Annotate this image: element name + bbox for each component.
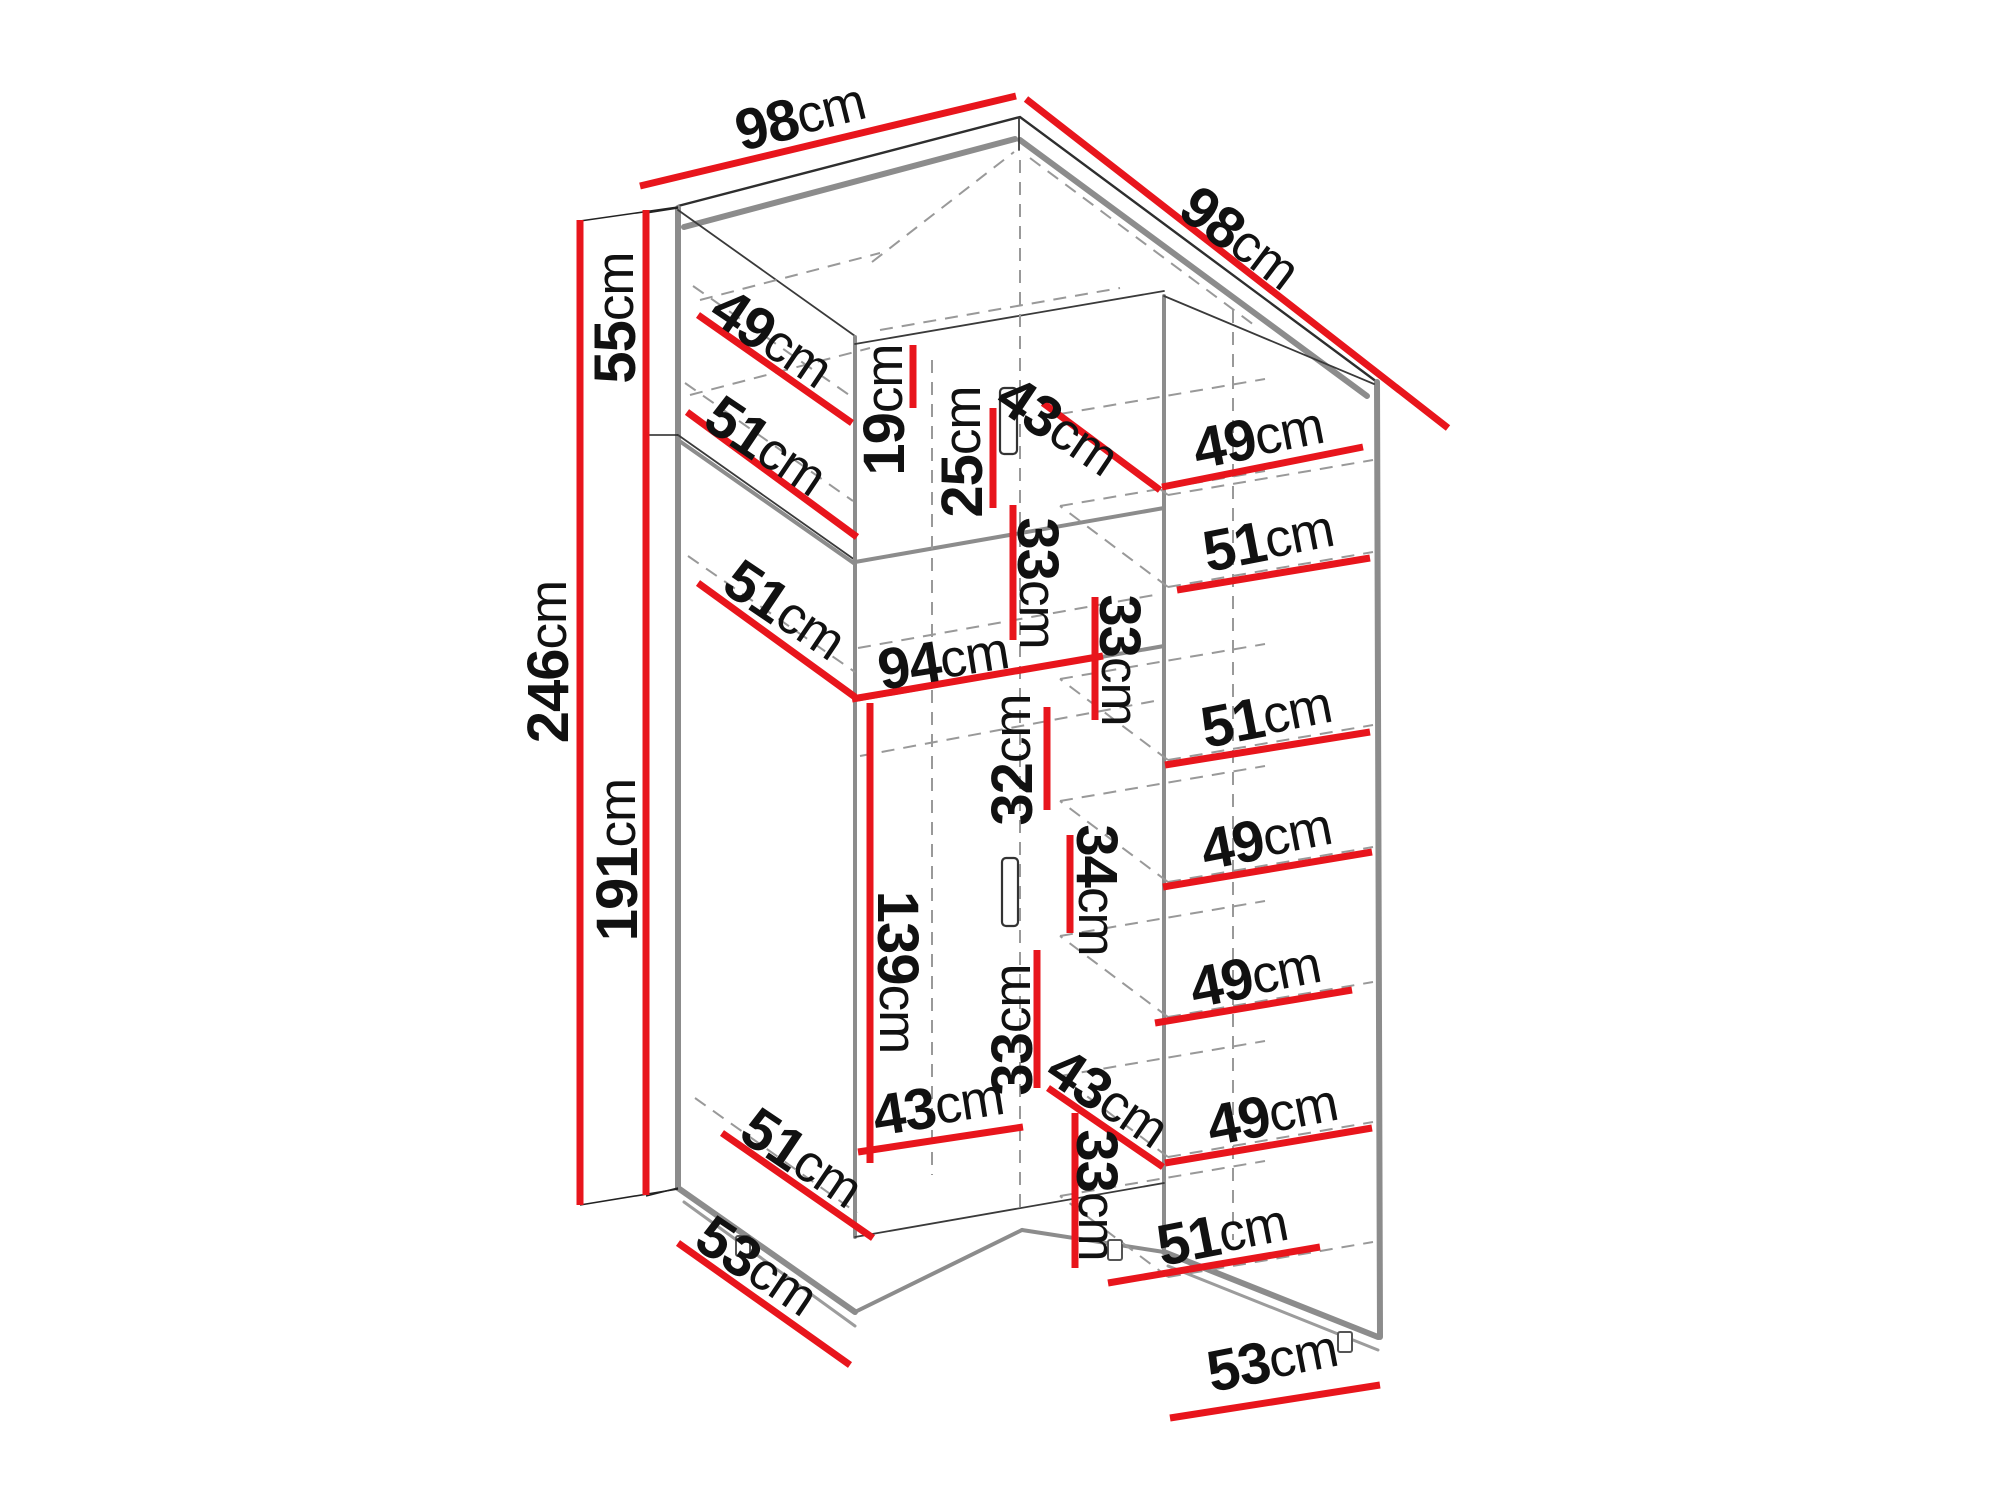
dimension-label-total-height: 246cm [516,581,581,743]
dimension-label-corner-opening-width: 94cm [873,618,1013,703]
dimension-label-upper-section-height: 55cm [583,252,648,383]
dimension-label-right-shelf-1: 51cm [1197,496,1338,585]
dimension-label-corner-upper-door-height: 25cm [930,386,995,517]
dimension-label-left-base-depth: 53cm [684,1202,829,1329]
dimension-label-corner-top-width: 43cm [985,362,1130,489]
dimension-label-corner-gap-height: 32cm [980,694,1045,825]
dimension-label-mid-left-shelf-depth: 51cm [712,546,857,673]
wardrobe-foot [1338,1332,1352,1352]
dimension-label-right-shelf-4: 49cm [1184,932,1325,1021]
dimension-label-corner-shelf-gap-left: 33cm [1006,517,1071,648]
dimension-label-top-width-left: 98cm [728,69,871,164]
dimension-label-right-shelf-6: 51cm [1151,1190,1292,1279]
dimension-label-top-width-right: 98cm [1168,173,1312,304]
dimension-label-corner-lower-gap-right: 33cm [1065,1129,1130,1260]
dimension-label-lower-left-shelf-depth: 51cm [729,1094,874,1221]
dimension-labels: 98cm98cm55cm246cm191cm49cm51cm19cm25cm43… [516,69,1343,1405]
dimension-label-corner-mid-gap: 34cm [1065,824,1130,955]
dimension-label-corner-shelf-gap-right: 33cm [1088,594,1153,725]
dim-line-53-right-base [1170,1385,1380,1418]
wardrobe-dimension-drawing: 98cm98cm55cm246cm191cm49cm51cm19cm25cm43… [0,0,2000,1500]
dimension-label-corner-top-gap-height: 19cm [852,344,917,475]
dimension-label-right-top-shelf-depth: 49cm [1187,393,1328,482]
dimension-label-lower-section-height: 191cm [585,779,650,941]
dimension-label-right-shelf-5: 49cm [1201,1070,1342,1159]
dimension-label-right-shelf-3: 49cm [1195,794,1336,883]
door-handle-lower [1002,858,1018,926]
dimension-diagram: 98cm98cm55cm246cm191cm49cm51cm19cm25cm43… [0,0,2000,1500]
dimension-label-right-shelf-2: 51cm [1195,672,1336,761]
dimension-label-lower-door-height: 139cm [866,891,931,1053]
